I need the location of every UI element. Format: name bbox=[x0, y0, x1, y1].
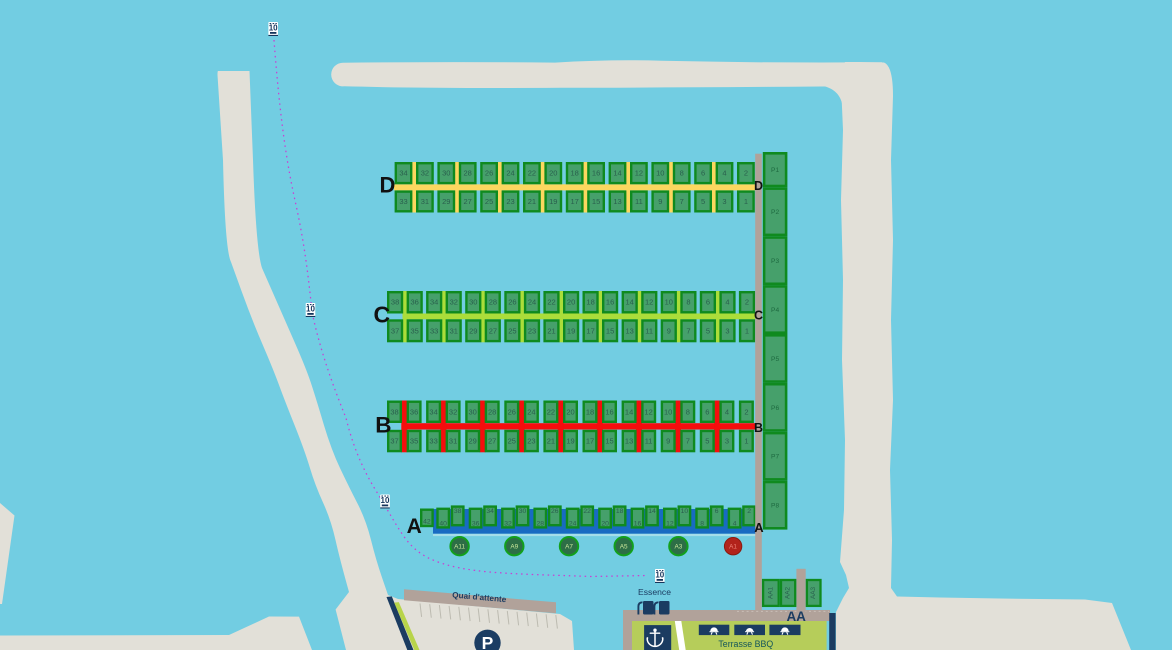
svg-text:11: 11 bbox=[635, 197, 643, 206]
svg-text:A: A bbox=[754, 520, 764, 535]
svg-text:9: 9 bbox=[666, 437, 670, 446]
svg-text:23: 23 bbox=[528, 326, 536, 335]
svg-text:23: 23 bbox=[527, 437, 535, 446]
svg-text:11: 11 bbox=[645, 437, 653, 446]
svg-text:13: 13 bbox=[625, 437, 633, 446]
svg-text:37: 37 bbox=[390, 437, 398, 446]
svg-text:29: 29 bbox=[442, 197, 450, 206]
svg-text:6: 6 bbox=[706, 298, 710, 307]
svg-text:P6: P6 bbox=[771, 405, 779, 412]
svg-text:34: 34 bbox=[430, 298, 438, 307]
svg-text:28: 28 bbox=[489, 298, 497, 307]
svg-text:8: 8 bbox=[700, 521, 704, 528]
svg-text:P5: P5 bbox=[771, 356, 779, 363]
svg-text:34: 34 bbox=[486, 508, 494, 515]
svg-text:A7: A7 bbox=[565, 544, 573, 551]
svg-text:2: 2 bbox=[744, 169, 748, 178]
svg-text:27: 27 bbox=[489, 326, 497, 335]
svg-text:42: 42 bbox=[423, 518, 431, 525]
svg-text:35: 35 bbox=[410, 437, 418, 446]
svg-text:A1: A1 bbox=[729, 544, 737, 551]
svg-text:7: 7 bbox=[686, 437, 690, 446]
svg-text:1: 1 bbox=[745, 326, 749, 335]
svg-text:AA3: AA3 bbox=[810, 587, 817, 600]
svg-text:5: 5 bbox=[701, 197, 705, 206]
svg-text:26: 26 bbox=[551, 508, 559, 515]
svg-text:14: 14 bbox=[648, 508, 656, 515]
svg-text:15: 15 bbox=[605, 437, 613, 446]
svg-text:1: 1 bbox=[744, 437, 748, 446]
svg-text:21: 21 bbox=[547, 437, 555, 446]
svg-text:9: 9 bbox=[667, 326, 671, 335]
svg-text:B: B bbox=[375, 413, 391, 438]
svg-text:16: 16 bbox=[592, 169, 600, 178]
svg-text:30: 30 bbox=[519, 508, 527, 515]
svg-text:32: 32 bbox=[450, 298, 458, 307]
svg-text:A5: A5 bbox=[620, 544, 628, 551]
svg-text:31: 31 bbox=[421, 197, 429, 206]
svg-text:2: 2 bbox=[744, 407, 748, 416]
svg-text:2: 2 bbox=[747, 508, 751, 515]
svg-text:19: 19 bbox=[567, 326, 575, 335]
svg-text:22: 22 bbox=[528, 169, 536, 178]
svg-text:7: 7 bbox=[686, 326, 690, 335]
svg-text:10: 10 bbox=[665, 298, 673, 307]
svg-text:P3: P3 bbox=[771, 258, 779, 265]
svg-text:13: 13 bbox=[613, 197, 621, 206]
svg-text:15: 15 bbox=[592, 197, 600, 206]
svg-text:33: 33 bbox=[399, 197, 407, 206]
svg-text:20: 20 bbox=[549, 169, 557, 178]
svg-text:20: 20 bbox=[601, 521, 609, 528]
svg-text:19: 19 bbox=[566, 437, 574, 446]
svg-text:8: 8 bbox=[686, 298, 690, 307]
svg-text:4: 4 bbox=[725, 407, 729, 416]
svg-text:8: 8 bbox=[680, 169, 684, 178]
svg-text:32: 32 bbox=[449, 407, 457, 416]
svg-text:30: 30 bbox=[469, 298, 477, 307]
svg-text:AA1: AA1 bbox=[768, 587, 775, 600]
svg-text:7: 7 bbox=[680, 197, 684, 206]
svg-text:38: 38 bbox=[454, 508, 462, 515]
svg-text:10: 10 bbox=[656, 169, 664, 178]
svg-text:18: 18 bbox=[586, 407, 594, 416]
svg-text:13: 13 bbox=[626, 326, 634, 335]
svg-text:P2: P2 bbox=[771, 209, 779, 216]
svg-text:C: C bbox=[374, 302, 391, 328]
svg-text:P7: P7 bbox=[771, 454, 779, 461]
svg-text:15: 15 bbox=[606, 326, 614, 335]
svg-text:21: 21 bbox=[547, 326, 555, 335]
svg-text:A11: A11 bbox=[454, 544, 465, 551]
svg-text:6: 6 bbox=[715, 508, 719, 515]
svg-text:P1: P1 bbox=[771, 167, 779, 174]
svg-text:25: 25 bbox=[508, 326, 516, 335]
svg-text:10: 10 bbox=[664, 407, 672, 416]
svg-text:28: 28 bbox=[464, 169, 472, 178]
svg-text:33: 33 bbox=[429, 437, 437, 446]
svg-text:6: 6 bbox=[701, 169, 705, 178]
svg-text:29: 29 bbox=[469, 326, 477, 335]
svg-text:24: 24 bbox=[569, 521, 577, 528]
svg-text:20: 20 bbox=[567, 298, 575, 307]
svg-text:30: 30 bbox=[469, 407, 477, 416]
svg-text:28: 28 bbox=[537, 521, 545, 528]
svg-text:10: 10 bbox=[655, 571, 664, 580]
svg-text:16: 16 bbox=[634, 521, 642, 528]
svg-text:5: 5 bbox=[706, 326, 710, 335]
svg-text:26: 26 bbox=[508, 298, 516, 307]
svg-text:22: 22 bbox=[583, 508, 591, 515]
svg-text:3: 3 bbox=[725, 437, 729, 446]
svg-text:10: 10 bbox=[306, 305, 315, 314]
svg-text:D: D bbox=[380, 172, 396, 197]
svg-text:30: 30 bbox=[442, 169, 450, 178]
svg-text:36: 36 bbox=[410, 407, 418, 416]
svg-text:19: 19 bbox=[549, 197, 557, 206]
svg-text:24: 24 bbox=[506, 169, 514, 178]
svg-text:14: 14 bbox=[626, 298, 634, 307]
svg-text:27: 27 bbox=[488, 437, 496, 446]
svg-text:35: 35 bbox=[411, 326, 419, 335]
svg-text:28: 28 bbox=[488, 407, 496, 416]
svg-text:34: 34 bbox=[429, 407, 437, 416]
svg-text:P: P bbox=[482, 633, 494, 650]
svg-text:5: 5 bbox=[705, 437, 709, 446]
svg-text:24: 24 bbox=[527, 407, 535, 416]
svg-text:40: 40 bbox=[439, 521, 447, 528]
svg-text:33: 33 bbox=[430, 326, 438, 335]
svg-text:9: 9 bbox=[658, 197, 662, 206]
svg-text:10: 10 bbox=[269, 24, 278, 33]
svg-text:37: 37 bbox=[391, 326, 399, 335]
svg-text:24: 24 bbox=[528, 298, 536, 307]
svg-text:12: 12 bbox=[635, 169, 643, 178]
svg-text:A3: A3 bbox=[674, 544, 682, 551]
svg-text:34: 34 bbox=[399, 169, 407, 178]
svg-text:26: 26 bbox=[508, 407, 516, 416]
svg-text:17: 17 bbox=[586, 326, 594, 335]
svg-text:AA2: AA2 bbox=[785, 587, 792, 600]
svg-text:20: 20 bbox=[566, 407, 574, 416]
svg-text:4: 4 bbox=[733, 521, 737, 528]
svg-text:3: 3 bbox=[722, 197, 726, 206]
svg-text:38: 38 bbox=[390, 407, 398, 416]
svg-text:18: 18 bbox=[616, 508, 624, 515]
svg-text:12: 12 bbox=[645, 298, 653, 307]
svg-text:31: 31 bbox=[449, 437, 457, 446]
svg-text:4: 4 bbox=[725, 298, 729, 307]
svg-text:36: 36 bbox=[472, 521, 480, 528]
svg-text:11: 11 bbox=[645, 326, 653, 335]
svg-text:32: 32 bbox=[504, 521, 512, 528]
svg-text:25: 25 bbox=[508, 437, 516, 446]
svg-text:12: 12 bbox=[644, 407, 652, 416]
svg-text:Essence: Essence bbox=[638, 587, 671, 597]
svg-text:22: 22 bbox=[547, 407, 555, 416]
svg-text:22: 22 bbox=[547, 298, 555, 307]
svg-text:3: 3 bbox=[725, 326, 729, 335]
svg-text:D: D bbox=[754, 179, 763, 193]
svg-text:14: 14 bbox=[625, 407, 633, 416]
svg-text:6: 6 bbox=[705, 407, 709, 416]
svg-text:32: 32 bbox=[421, 169, 429, 178]
svg-text:4: 4 bbox=[722, 169, 726, 178]
svg-text:2: 2 bbox=[745, 298, 749, 307]
svg-text:A: A bbox=[407, 515, 422, 538]
svg-text:17: 17 bbox=[586, 437, 594, 446]
svg-text:31: 31 bbox=[450, 326, 458, 335]
svg-text:14: 14 bbox=[613, 169, 621, 178]
svg-text:23: 23 bbox=[506, 197, 514, 206]
svg-text:Terrasse BBQ: Terrasse BBQ bbox=[718, 639, 773, 649]
svg-text:B: B bbox=[754, 421, 763, 435]
svg-text:16: 16 bbox=[605, 407, 613, 416]
svg-text:12: 12 bbox=[666, 521, 674, 528]
svg-text:21: 21 bbox=[528, 197, 536, 206]
svg-text:P4: P4 bbox=[771, 307, 779, 314]
svg-text:17: 17 bbox=[571, 197, 579, 206]
svg-text:C: C bbox=[754, 309, 763, 323]
svg-text:27: 27 bbox=[464, 197, 472, 206]
svg-text:P8: P8 bbox=[771, 503, 779, 510]
svg-text:36: 36 bbox=[411, 298, 419, 307]
svg-text:8: 8 bbox=[686, 407, 690, 416]
svg-text:16: 16 bbox=[606, 298, 614, 307]
svg-text:10: 10 bbox=[681, 508, 689, 515]
svg-text:26: 26 bbox=[485, 169, 493, 178]
svg-text:18: 18 bbox=[571, 169, 579, 178]
svg-text:18: 18 bbox=[586, 298, 594, 307]
svg-text:A9: A9 bbox=[510, 544, 518, 551]
svg-text:38: 38 bbox=[391, 298, 399, 307]
svg-text:1: 1 bbox=[744, 197, 748, 206]
svg-text:25: 25 bbox=[485, 197, 493, 206]
svg-text:29: 29 bbox=[469, 437, 477, 446]
svg-text:10: 10 bbox=[381, 496, 390, 505]
